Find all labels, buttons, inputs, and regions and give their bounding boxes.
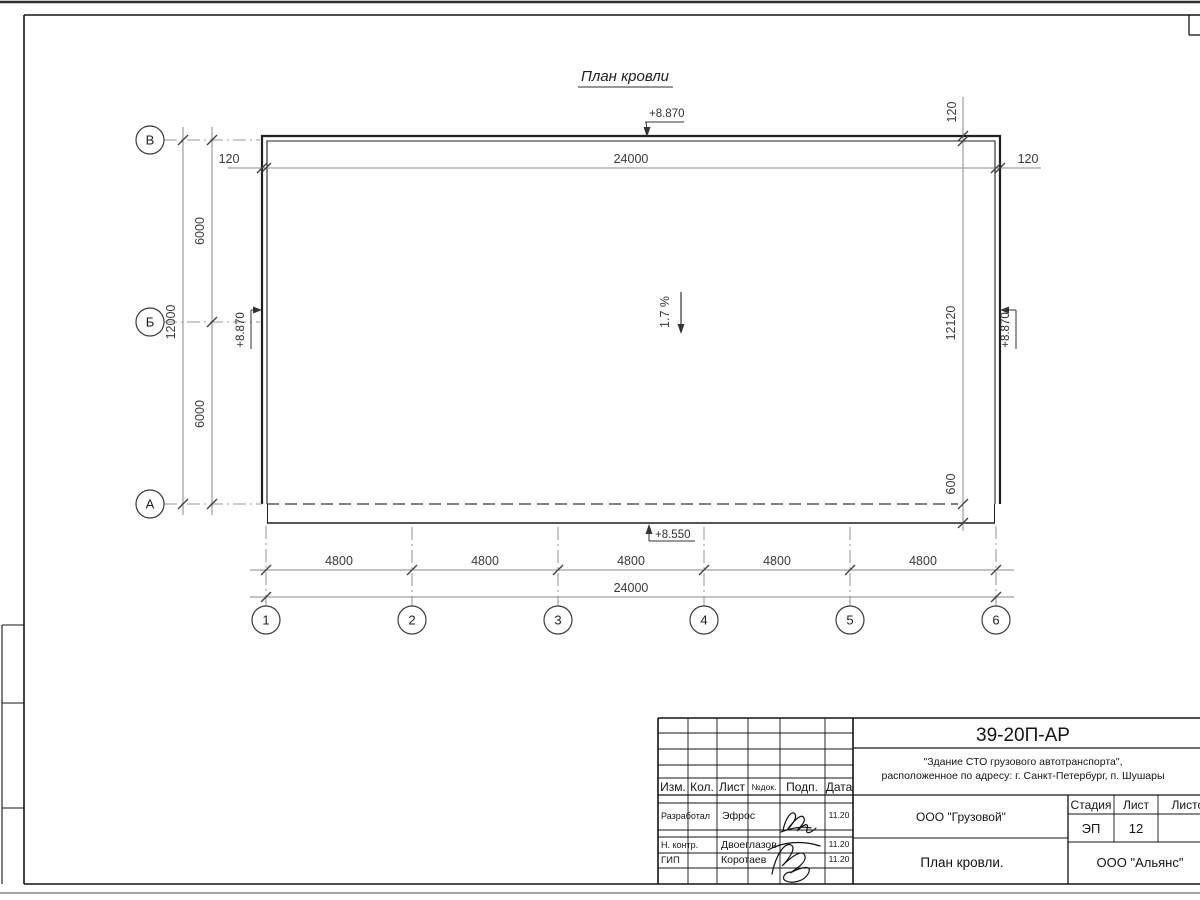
col-izm: Изм. [660,780,686,794]
drawing-name: План кровли. [920,855,1003,870]
elevation-left-value: +8.870 [235,312,247,348]
col-list: Лист [719,780,746,794]
dim-left-total: 12000 [164,305,178,340]
drawing-title-text: План кровли [581,68,670,85]
axis-label-2: 2 [408,613,415,628]
elevation-bottom: +8.550 [646,524,696,541]
drawing-sheet: План кровли 1.7 % В Б А [0,0,1200,900]
org-designer: ООО "Альянс" [1097,855,1184,870]
dimensions-top: 120 24000 120 [219,152,1041,173]
axis-label-4: 4 [700,613,707,628]
slope-mark: 1.7 % [658,292,685,334]
dim-bottom-seg-1: 4800 [325,554,353,568]
dim-right-top: 120 [945,102,959,123]
dim-right-overhang: 600 [944,474,958,495]
sheet-value: 12 [1129,821,1143,836]
elevation-top: +8.870 [644,108,685,137]
dim-left-seg2: 6000 [193,400,207,428]
dim-top-total: 24000 [614,152,649,166]
filing-boxes [2,625,24,884]
axis-label-1: 1 [262,613,269,628]
roof-outline [262,136,1000,523]
dim-bottom-seg-5: 4800 [909,554,937,568]
slope-arrow-icon [678,324,685,334]
axis-label-6: 6 [992,613,999,628]
dim-right-total: 12120 [944,306,958,341]
drawing-title: План кровли [578,68,673,87]
row-name-1: Эфрос [722,810,755,822]
row-date-1: 11.20 [829,810,850,820]
elevation-right: +8.870 [1000,307,1016,350]
dimensions-right: 120 12120 600 [944,97,968,531]
dim-top-left: 120 [219,152,240,166]
row-role-1: Разработал [661,811,710,821]
org-customer: ООО "Грузовой" [916,810,1006,824]
elevation-bottom-value: +8.550 [655,529,691,541]
elevation-top-value: +8.870 [649,108,685,120]
dim-bottom-seg-2: 4800 [471,554,499,568]
sheets-label: Листов [1172,798,1200,812]
stage-label: Стадия [1071,798,1112,812]
dim-left-seg1: 6000 [193,217,207,245]
col-ndok: №док. [752,782,777,792]
title-block: Изм. Кол. Лист №док. Подп. Дата Разработ… [658,718,1200,884]
row-date-3: 11.20 [829,854,850,864]
dimensions-left: 12000 6000 6000 [164,127,217,515]
doc-number: 39-20П-АР [976,725,1070,746]
axis-label-b: Б [146,315,155,330]
roof-outer-wall [262,136,1000,504]
slope-label: 1.7 % [658,296,672,328]
project-line1: "Здание СТО грузового автотранспорта", [923,756,1122,768]
axis-label-5: 5 [846,613,853,628]
project-line2: расположенное по адресу: г. Санкт-Петерб… [882,770,1165,782]
roof-inner-wall [267,141,995,504]
axis-circles-bottom: 1 2 3 4 5 6 [252,606,1010,634]
elevation-right-value: +8.870 [1000,312,1012,348]
corner-box [1189,15,1200,35]
axis-label-v: В [146,133,155,148]
col-data: Дата [826,780,853,794]
col-podp: Подп. [786,780,818,794]
dimensions-bottom: 4800 4800 4800 4800 4800 24000 [250,526,1014,606]
row-role-3: ГИП [661,855,680,866]
axis-label-a: А [146,497,155,512]
col-kol: Кол. [690,780,714,794]
row-role-2: Н. контр. [661,840,698,850]
axis-label-3: 3 [554,613,561,628]
elevation-left: +8.870 [235,307,262,350]
sheet-label: Лист [1123,798,1150,812]
dim-bottom-seg-4: 4800 [763,554,791,568]
row-name-3: Коротаев [721,854,767,866]
row-date-2: 11.20 [829,839,850,849]
dim-top-right: 120 [1018,152,1039,166]
stage-value: ЭП [1082,821,1101,836]
dim-bottom-seg-3: 4800 [617,554,645,568]
dim-bottom-total: 24000 [614,581,649,595]
